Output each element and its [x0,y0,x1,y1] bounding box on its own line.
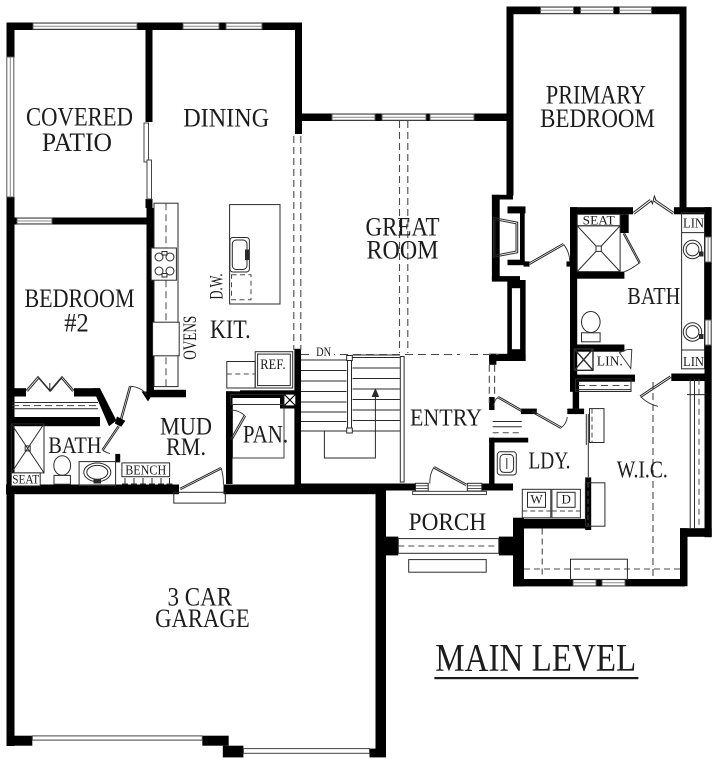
svg-text:LIN.: LIN. [597,354,623,369]
svg-text:SEAT: SEAT [583,213,615,227]
svg-text:PATIO: PATIO [42,127,112,157]
svg-text:W.I.C.: W.I.C. [617,457,668,483]
svg-text:REF.: REF. [260,357,285,373]
svg-text:LDY.: LDY. [529,449,571,475]
svg-text:LIN: LIN [683,355,704,370]
svg-text:RM.: RM. [166,434,206,461]
svg-text:LIN: LIN [683,217,704,232]
svg-text:BENCH: BENCH [125,463,166,478]
svg-text:BATH: BATH [48,433,101,458]
svg-text:OVENS: OVENS [180,316,201,360]
svg-text:KIT.: KIT. [210,314,251,344]
svg-text:ENTRY: ENTRY [410,405,482,432]
svg-text:D.W.: D.W. [206,274,227,300]
svg-text:PORCH: PORCH [409,509,487,536]
svg-text:W: W [530,492,543,507]
svg-text:D: D [562,492,571,507]
svg-text:PAN.: PAN. [243,420,288,449]
svg-text:ROOM: ROOM [367,234,439,264]
svg-text:GARAGE: GARAGE [155,604,250,633]
svg-text:DN: DN [316,345,331,359]
svg-text:MAIN LEVEL: MAIN LEVEL [435,637,636,680]
svg-text:BATH: BATH [627,284,680,310]
svg-text:#2: #2 [64,307,89,337]
svg-text:SEAT: SEAT [12,472,39,487]
svg-text:DINING: DINING [183,103,269,133]
svg-text:BEDROOM: BEDROOM [540,103,655,133]
